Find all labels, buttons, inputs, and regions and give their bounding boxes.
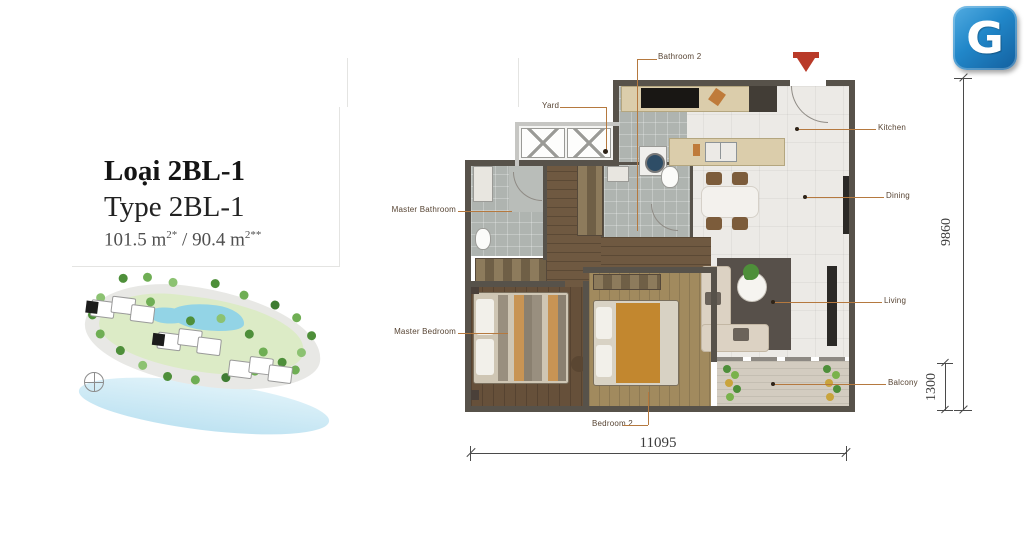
area-net: 90.4 m bbox=[192, 229, 245, 250]
dimension-line-width bbox=[470, 453, 847, 454]
cooktop bbox=[641, 88, 699, 108]
fridge bbox=[749, 84, 777, 112]
faint-guide-line bbox=[347, 58, 348, 107]
floor-hallway bbox=[601, 237, 711, 270]
cushion bbox=[733, 328, 749, 341]
label-yard: Yard bbox=[542, 101, 559, 110]
area-separator: / bbox=[177, 229, 192, 250]
pillow bbox=[596, 345, 612, 377]
leader-line bbox=[560, 107, 607, 108]
leader-line bbox=[774, 302, 882, 303]
leader-line bbox=[606, 107, 607, 151]
leader-line bbox=[806, 197, 884, 198]
wall bbox=[711, 270, 717, 362]
leader-dot bbox=[803, 195, 807, 199]
bedroom2-bed bbox=[593, 300, 679, 386]
label-bedroom2: Bedroom 2 bbox=[592, 419, 633, 428]
dimension-width-value: 11095 bbox=[608, 436, 708, 451]
leader-line bbox=[623, 425, 648, 426]
dining-chair bbox=[706, 172, 722, 185]
label-balcony: Balcony bbox=[888, 378, 918, 387]
dimension-depth-value: 9860 bbox=[939, 202, 955, 262]
master-bed bbox=[473, 292, 569, 384]
leader-dot bbox=[603, 149, 608, 154]
dimension-line-depth bbox=[963, 78, 964, 411]
wardrobe bbox=[577, 162, 603, 236]
floorplan-sheet: G Loại 2BL-1 Type 2BL-1 101.5 m2* / 90.4… bbox=[0, 0, 1024, 536]
label-kitchen: Kitchen bbox=[878, 123, 906, 132]
dining-chair bbox=[732, 217, 748, 230]
area-net-sup: 2** bbox=[245, 229, 262, 241]
leader-dot bbox=[771, 382, 775, 386]
toilet bbox=[661, 166, 679, 188]
pillow bbox=[476, 339, 494, 375]
balcony-plant bbox=[823, 365, 831, 373]
siteplan-trees bbox=[90, 270, 100, 280]
blanket bbox=[498, 295, 566, 381]
wall bbox=[465, 281, 565, 287]
building-wing bbox=[130, 304, 156, 324]
tv-cabinet bbox=[827, 266, 837, 346]
balcony-sliding-door bbox=[717, 357, 849, 361]
highlighted-unit-block bbox=[85, 301, 98, 314]
floor-plan bbox=[465, 60, 857, 412]
wall bbox=[465, 160, 617, 166]
pillow bbox=[596, 307, 612, 339]
label-bathroom2: Bathroom 2 bbox=[658, 52, 701, 61]
vanity-sink bbox=[607, 166, 629, 182]
blanket bbox=[616, 303, 660, 383]
leader-line bbox=[458, 333, 508, 334]
leader-line bbox=[798, 129, 876, 130]
leader-line bbox=[648, 392, 649, 425]
toilet bbox=[475, 228, 491, 250]
dining-chair bbox=[706, 217, 722, 230]
building-wing bbox=[267, 364, 293, 384]
vanity-sink bbox=[473, 166, 493, 202]
wall bbox=[543, 160, 547, 260]
balcony-plant bbox=[723, 365, 731, 373]
label-master-bedroom: Master Bedroom bbox=[378, 327, 456, 336]
siteplan-thumbnail bbox=[72, 280, 332, 428]
compass-icon bbox=[84, 372, 104, 392]
kitchen-bottle bbox=[693, 144, 700, 156]
yard-louvre-window bbox=[521, 128, 565, 158]
label-living: Living bbox=[884, 296, 906, 305]
unit-type-title-english: Type 2BL-1 bbox=[104, 191, 245, 224]
brand-logo-letter: G bbox=[966, 16, 1004, 60]
dimension-cap bbox=[846, 446, 847, 461]
building-wing bbox=[196, 336, 222, 356]
label-master-bathroom: Master Bathroom bbox=[378, 205, 456, 214]
dimension-line-balcony bbox=[945, 363, 946, 411]
faint-guide-line bbox=[339, 107, 340, 267]
wall bbox=[583, 281, 589, 406]
dimension-balcony-value: 1300 bbox=[924, 359, 940, 415]
wall bbox=[465, 406, 855, 412]
leader-line bbox=[637, 59, 638, 231]
yard-wall bbox=[515, 122, 619, 126]
unit-type-title-vietnamese: Loại 2BL-1 bbox=[104, 155, 245, 188]
pillow bbox=[476, 299, 494, 335]
wall bbox=[613, 80, 790, 86]
dining-chair bbox=[732, 172, 748, 185]
area-gross: 101.5 m bbox=[104, 229, 166, 250]
unit-area-text: 101.5 m2* / 90.4 m2** bbox=[104, 229, 261, 251]
leader-dot bbox=[795, 127, 799, 131]
leader-line bbox=[458, 211, 512, 212]
plant bbox=[743, 264, 759, 280]
sink-divider bbox=[720, 143, 721, 159]
brand-logo: G bbox=[953, 6, 1017, 70]
sink bbox=[705, 142, 737, 162]
wall bbox=[583, 267, 717, 273]
faint-guide-line bbox=[72, 266, 339, 267]
area-gross-sup: 2* bbox=[166, 229, 177, 241]
leader-line bbox=[637, 59, 657, 60]
label-dining: Dining bbox=[886, 191, 910, 200]
dining-table bbox=[701, 186, 759, 218]
highlighted-unit-block bbox=[152, 333, 165, 346]
bedroom2-wardrobe bbox=[593, 274, 661, 290]
leader-line bbox=[774, 384, 886, 385]
leader-dot bbox=[771, 300, 775, 304]
entry-marker-arrow-icon bbox=[797, 58, 815, 72]
yard-wall bbox=[515, 122, 519, 166]
